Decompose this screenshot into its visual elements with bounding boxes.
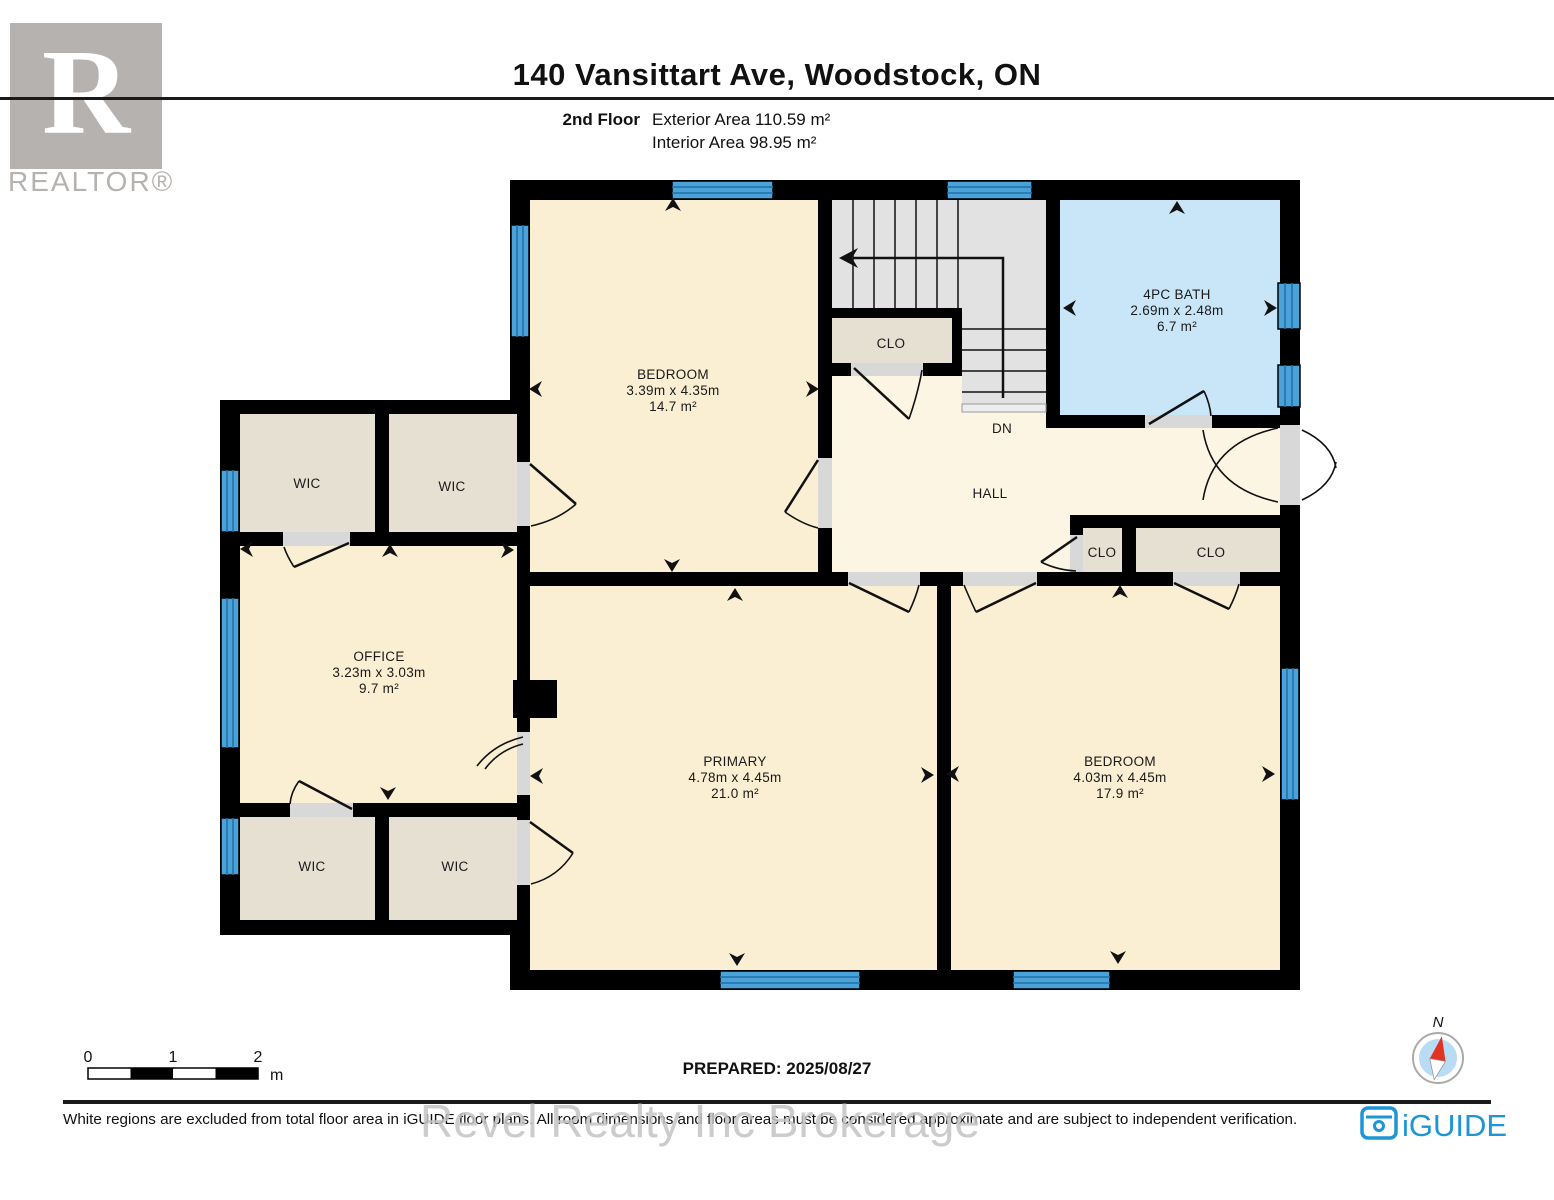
stairs-upper-run (832, 200, 1046, 308)
window-right-bedroom (1281, 668, 1299, 800)
primary-dims: 4.78m x 4.45m (688, 770, 781, 785)
wic-upper-left-label: WIC (293, 476, 320, 491)
window-left-bedroom (511, 225, 529, 337)
compass-north-label: N (1433, 1014, 1444, 1031)
bedroom-right-dims: 4.03m x 4.45m (1073, 770, 1166, 785)
door-wic2-bedroom (517, 462, 530, 526)
bath-area: 6.7 m² (1157, 319, 1197, 334)
window-bath-2 (1278, 365, 1300, 407)
door-hall-bedroom-top (818, 458, 832, 528)
wic-upper-right-label: WIC (438, 479, 465, 494)
door-closet-wide (1173, 572, 1240, 586)
window-left-wic (221, 470, 239, 532)
wic-upper-left (240, 414, 375, 532)
door-hall-primary (848, 572, 920, 586)
bedroom-right-area: 17.9 m² (1096, 786, 1144, 801)
chimney (513, 680, 557, 718)
door-wic-upper-office (283, 532, 350, 546)
closet-small-label: CLO (1088, 545, 1117, 560)
door-wic4-primary (517, 820, 530, 885)
window-top-stairs (947, 181, 1032, 199)
window-left-wic-lower (221, 818, 239, 875)
window-bottom-primary (720, 971, 860, 989)
prepared-date: PREPARED: 2025/08/27 (0, 1059, 1554, 1079)
window-left-office (221, 598, 239, 748)
stair-landing-edge (962, 404, 1046, 412)
down-label: DN (992, 421, 1012, 436)
bath-dims: 2.69m x 2.48m (1130, 303, 1223, 318)
footer-disclaimer: White regions are excluded from total fl… (63, 1111, 1413, 1128)
floor-plan: BEDROOM 3.39m x 4.35m 14.7 m² 4PC BATH 2… (0, 0, 1554, 1200)
window-bottom-bedroom (1013, 971, 1110, 989)
closet-wide-label: CLO (1197, 545, 1226, 560)
door-hall-bedroom-right (963, 572, 1037, 586)
closet-upper-label: CLO (877, 336, 906, 351)
wic-lower-right-label: WIC (441, 859, 468, 874)
footer-divider (63, 1100, 1491, 1104)
bedroom-right-name: BEDROOM (1084, 754, 1156, 769)
hall-label: HALL (973, 486, 1008, 501)
bedroom-top-name: BEDROOM (637, 367, 709, 382)
bath-name: 4PC BATH (1143, 287, 1210, 302)
bedroom-top-area: 14.7 m² (649, 399, 697, 414)
office-dims: 3.23m x 3.03m (332, 665, 425, 680)
wic-upper-right (389, 414, 517, 532)
wic-lower-left-label: WIC (298, 859, 325, 874)
primary-area: 21.0 m² (711, 786, 759, 801)
office-name: OFFICE (353, 649, 404, 664)
window-bath-1 (1278, 283, 1300, 329)
primary-name: PRIMARY (703, 754, 766, 769)
iguide-wordmark: iGUIDE (1402, 1108, 1507, 1143)
window-top-bedroom (672, 181, 773, 199)
bedroom-top-dims: 3.39m x 4.35m (626, 383, 719, 398)
door-hall-right-opening (1280, 425, 1300, 505)
office-area: 9.7 m² (359, 681, 399, 696)
door-office-primary (517, 732, 530, 795)
